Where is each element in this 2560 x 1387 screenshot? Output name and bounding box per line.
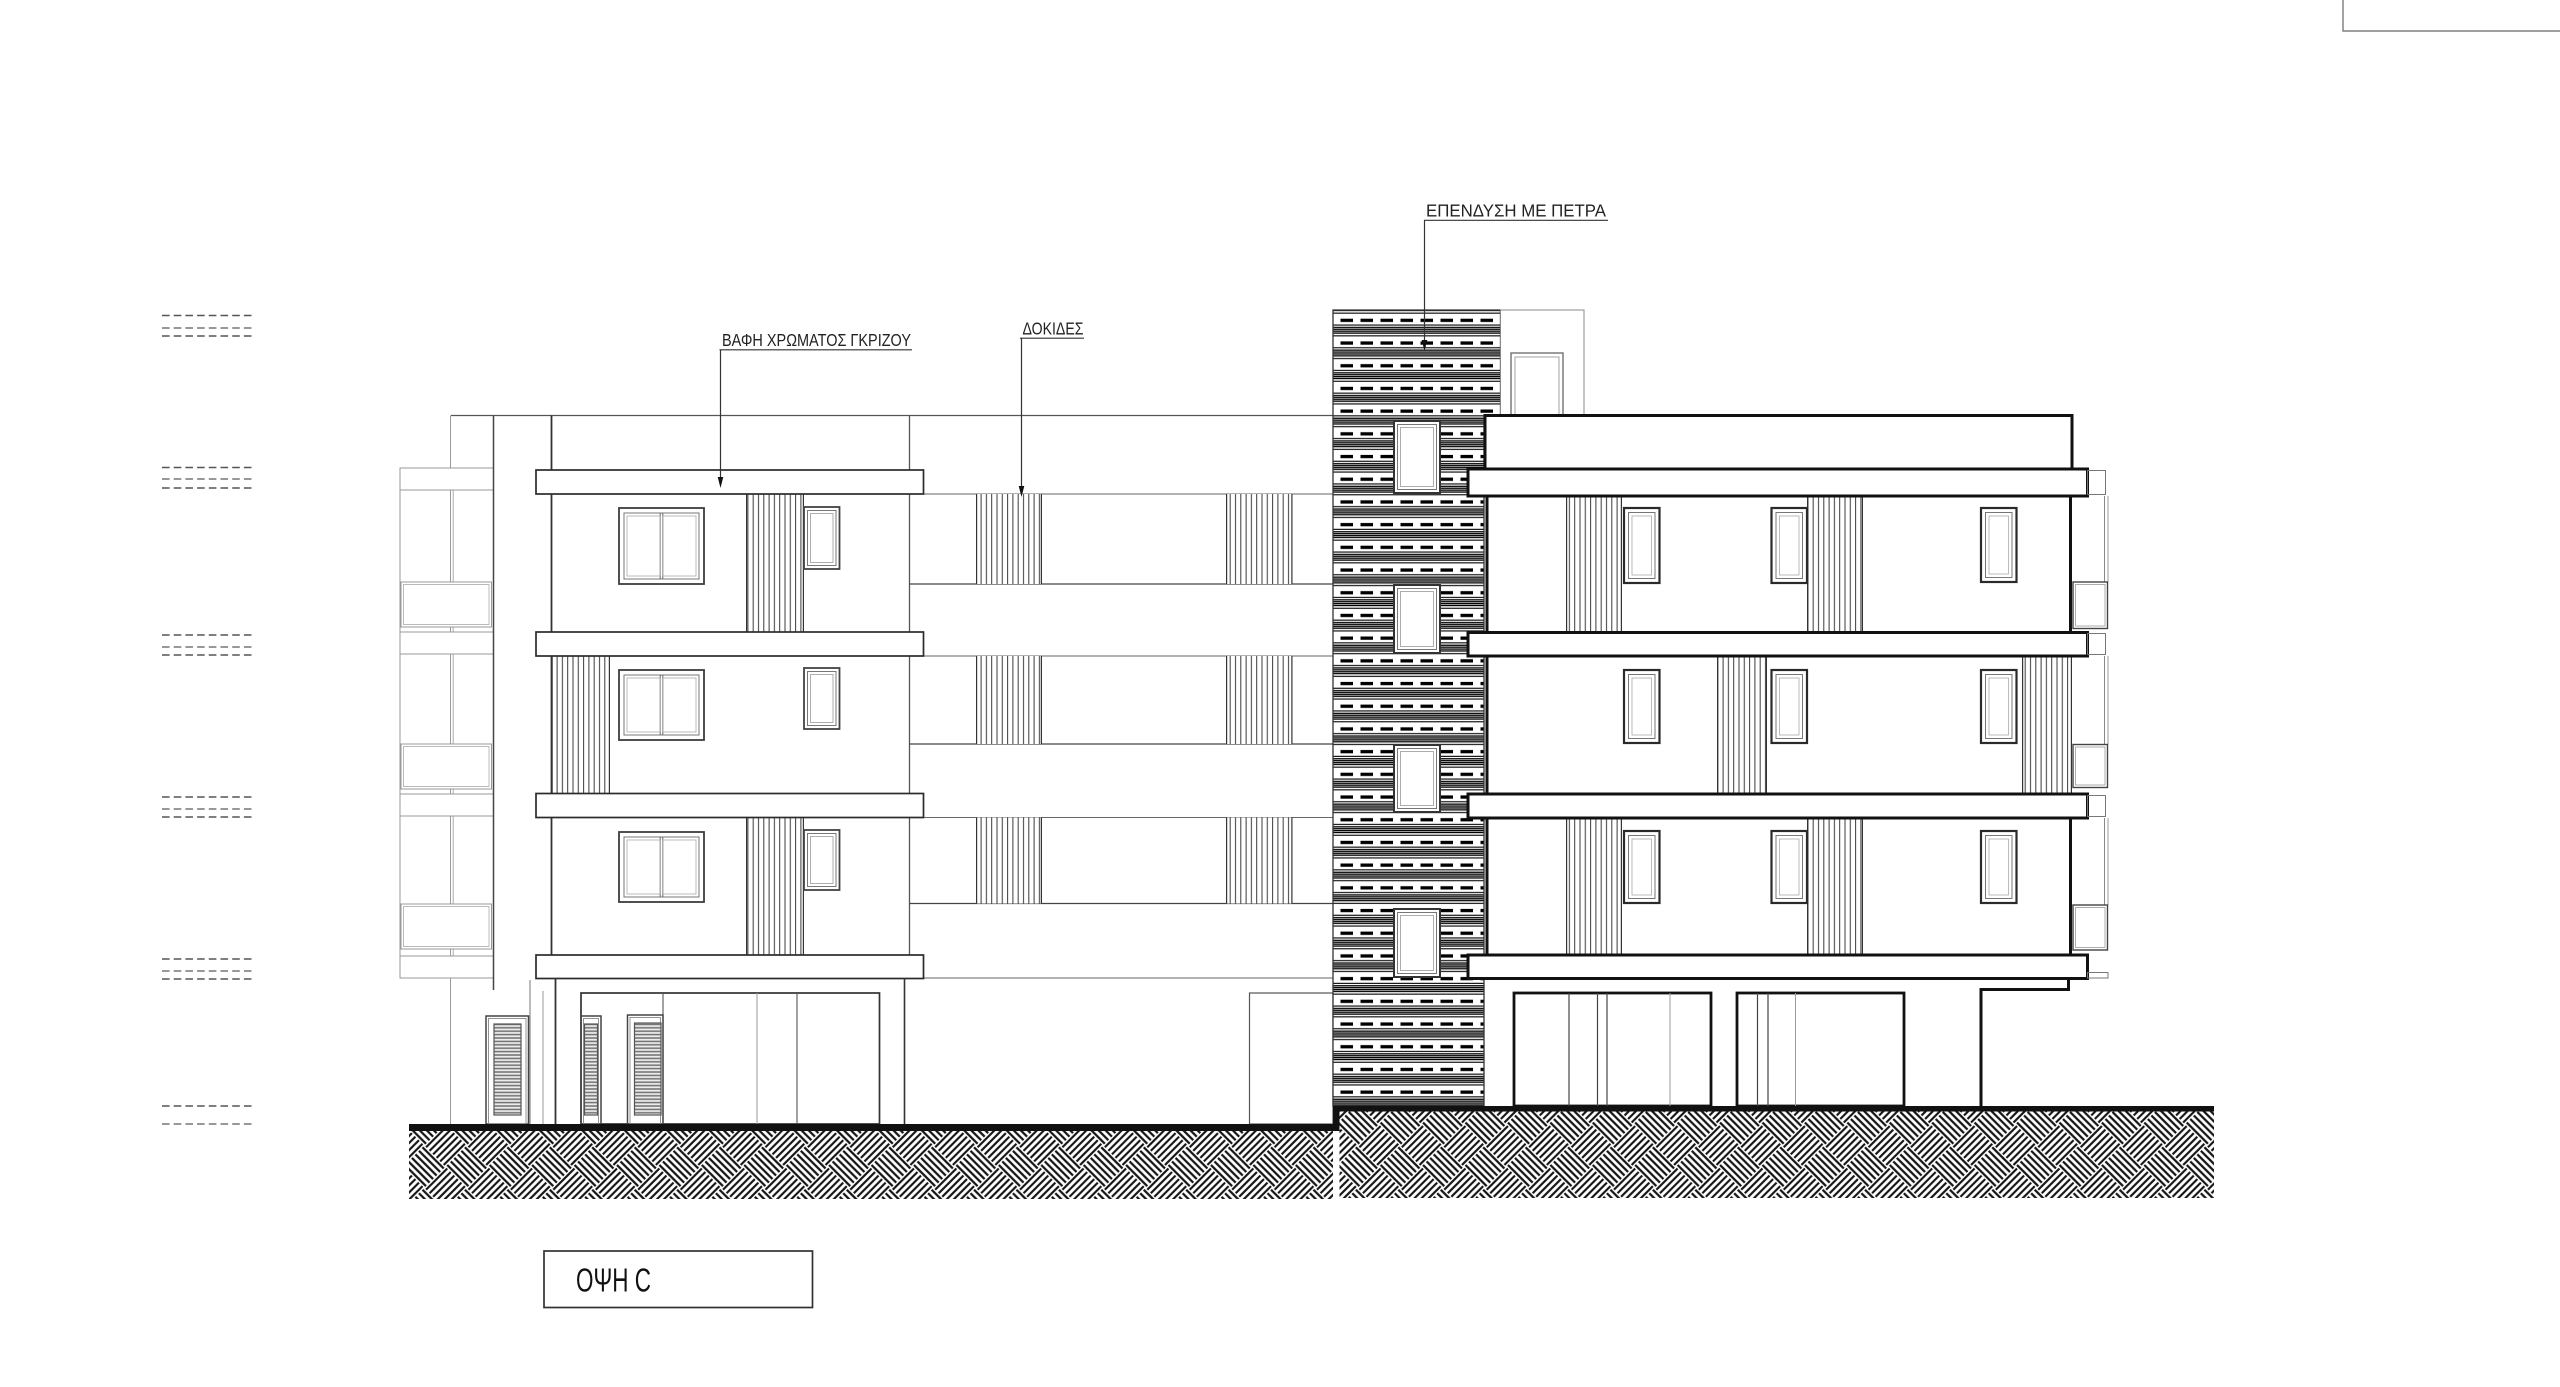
svg-text:ΟΨΗ C: ΟΨΗ C: [576, 1262, 651, 1299]
svg-text:ΒΑΦΗ ΧΡΩΜΑΤΟΣ ΓΚΡΙΖΟΥ: ΒΑΦΗ ΧΡΩΜΑΤΟΣ ΓΚΡΙΖΟΥ: [722, 330, 911, 350]
svg-text:ΔΟΚΙΔΕΣ: ΔΟΚΙΔΕΣ: [1023, 319, 1084, 339]
svg-text:ΕΠΕΝΔΥΣΗ ΜΕ ΠΕΤΡΑ: ΕΠΕΝΔΥΣΗ ΜΕ ΠΕΤΡΑ: [1426, 201, 1606, 221]
